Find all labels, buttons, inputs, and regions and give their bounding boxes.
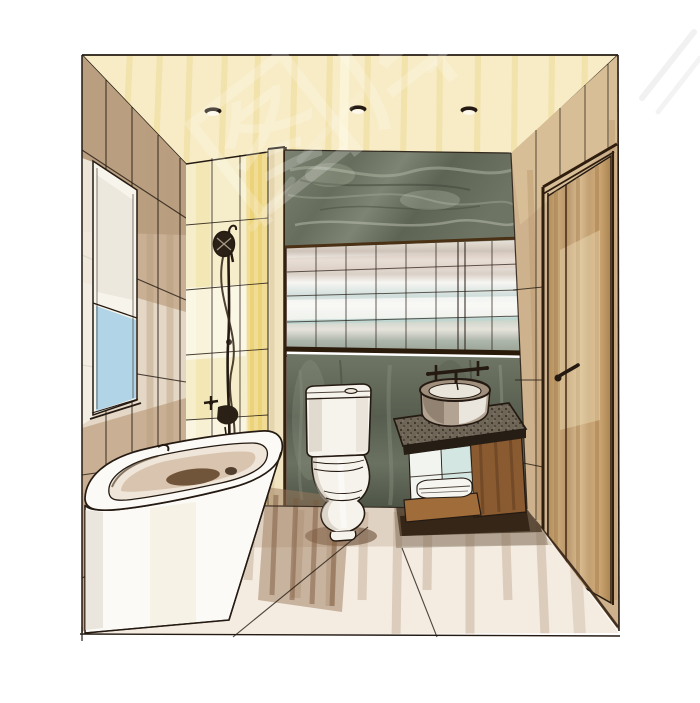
sketch-canvas: 图库: [0, 0, 700, 703]
flush-button: [345, 389, 357, 394]
window: [90, 161, 141, 419]
toilet-base: [330, 531, 356, 541]
window-glass: [96, 306, 136, 411]
window-return: [82, 158, 93, 425]
vessel-sink: [420, 379, 490, 426]
folded-towels: [417, 478, 472, 498]
mirrored-cabinet: [285, 238, 523, 360]
